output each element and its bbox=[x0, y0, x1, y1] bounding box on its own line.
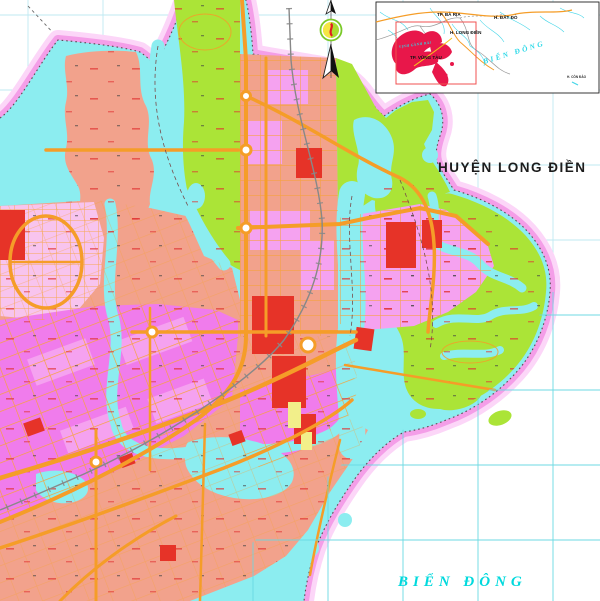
inset-label-ba-ria: TP. BÀ RỊA bbox=[437, 11, 461, 17]
inset-label-con-dao: H. CÔN ĐẢO bbox=[567, 74, 587, 79]
label-huyen-long-dien: HUYỆN LONG ĐIỀN bbox=[438, 160, 587, 175]
map-canvas: TP. BÀ RỊA H. ĐẤT ĐỎ H. LONG ĐIỀN TP. VŨ… bbox=[0, 0, 600, 601]
label-bien-dong: BIỂN ĐÔNG bbox=[397, 572, 527, 590]
inset-label-dat-do: H. ĐẤT ĐỎ bbox=[494, 14, 518, 20]
planning-map: TP. BÀ RỊA H. ĐẤT ĐỎ H. LONG ĐIỀN TP. VŨ… bbox=[0, 0, 600, 601]
inset-label-vung-tau: TP. VŨNG TÀU bbox=[410, 54, 443, 60]
location-inset-map: TP. BÀ RỊA H. ĐẤT ĐỎ H. LONG ĐIỀN TP. VŨ… bbox=[376, 2, 599, 93]
inset-label-long-dien: H. LONG ĐIỀN bbox=[450, 29, 482, 35]
